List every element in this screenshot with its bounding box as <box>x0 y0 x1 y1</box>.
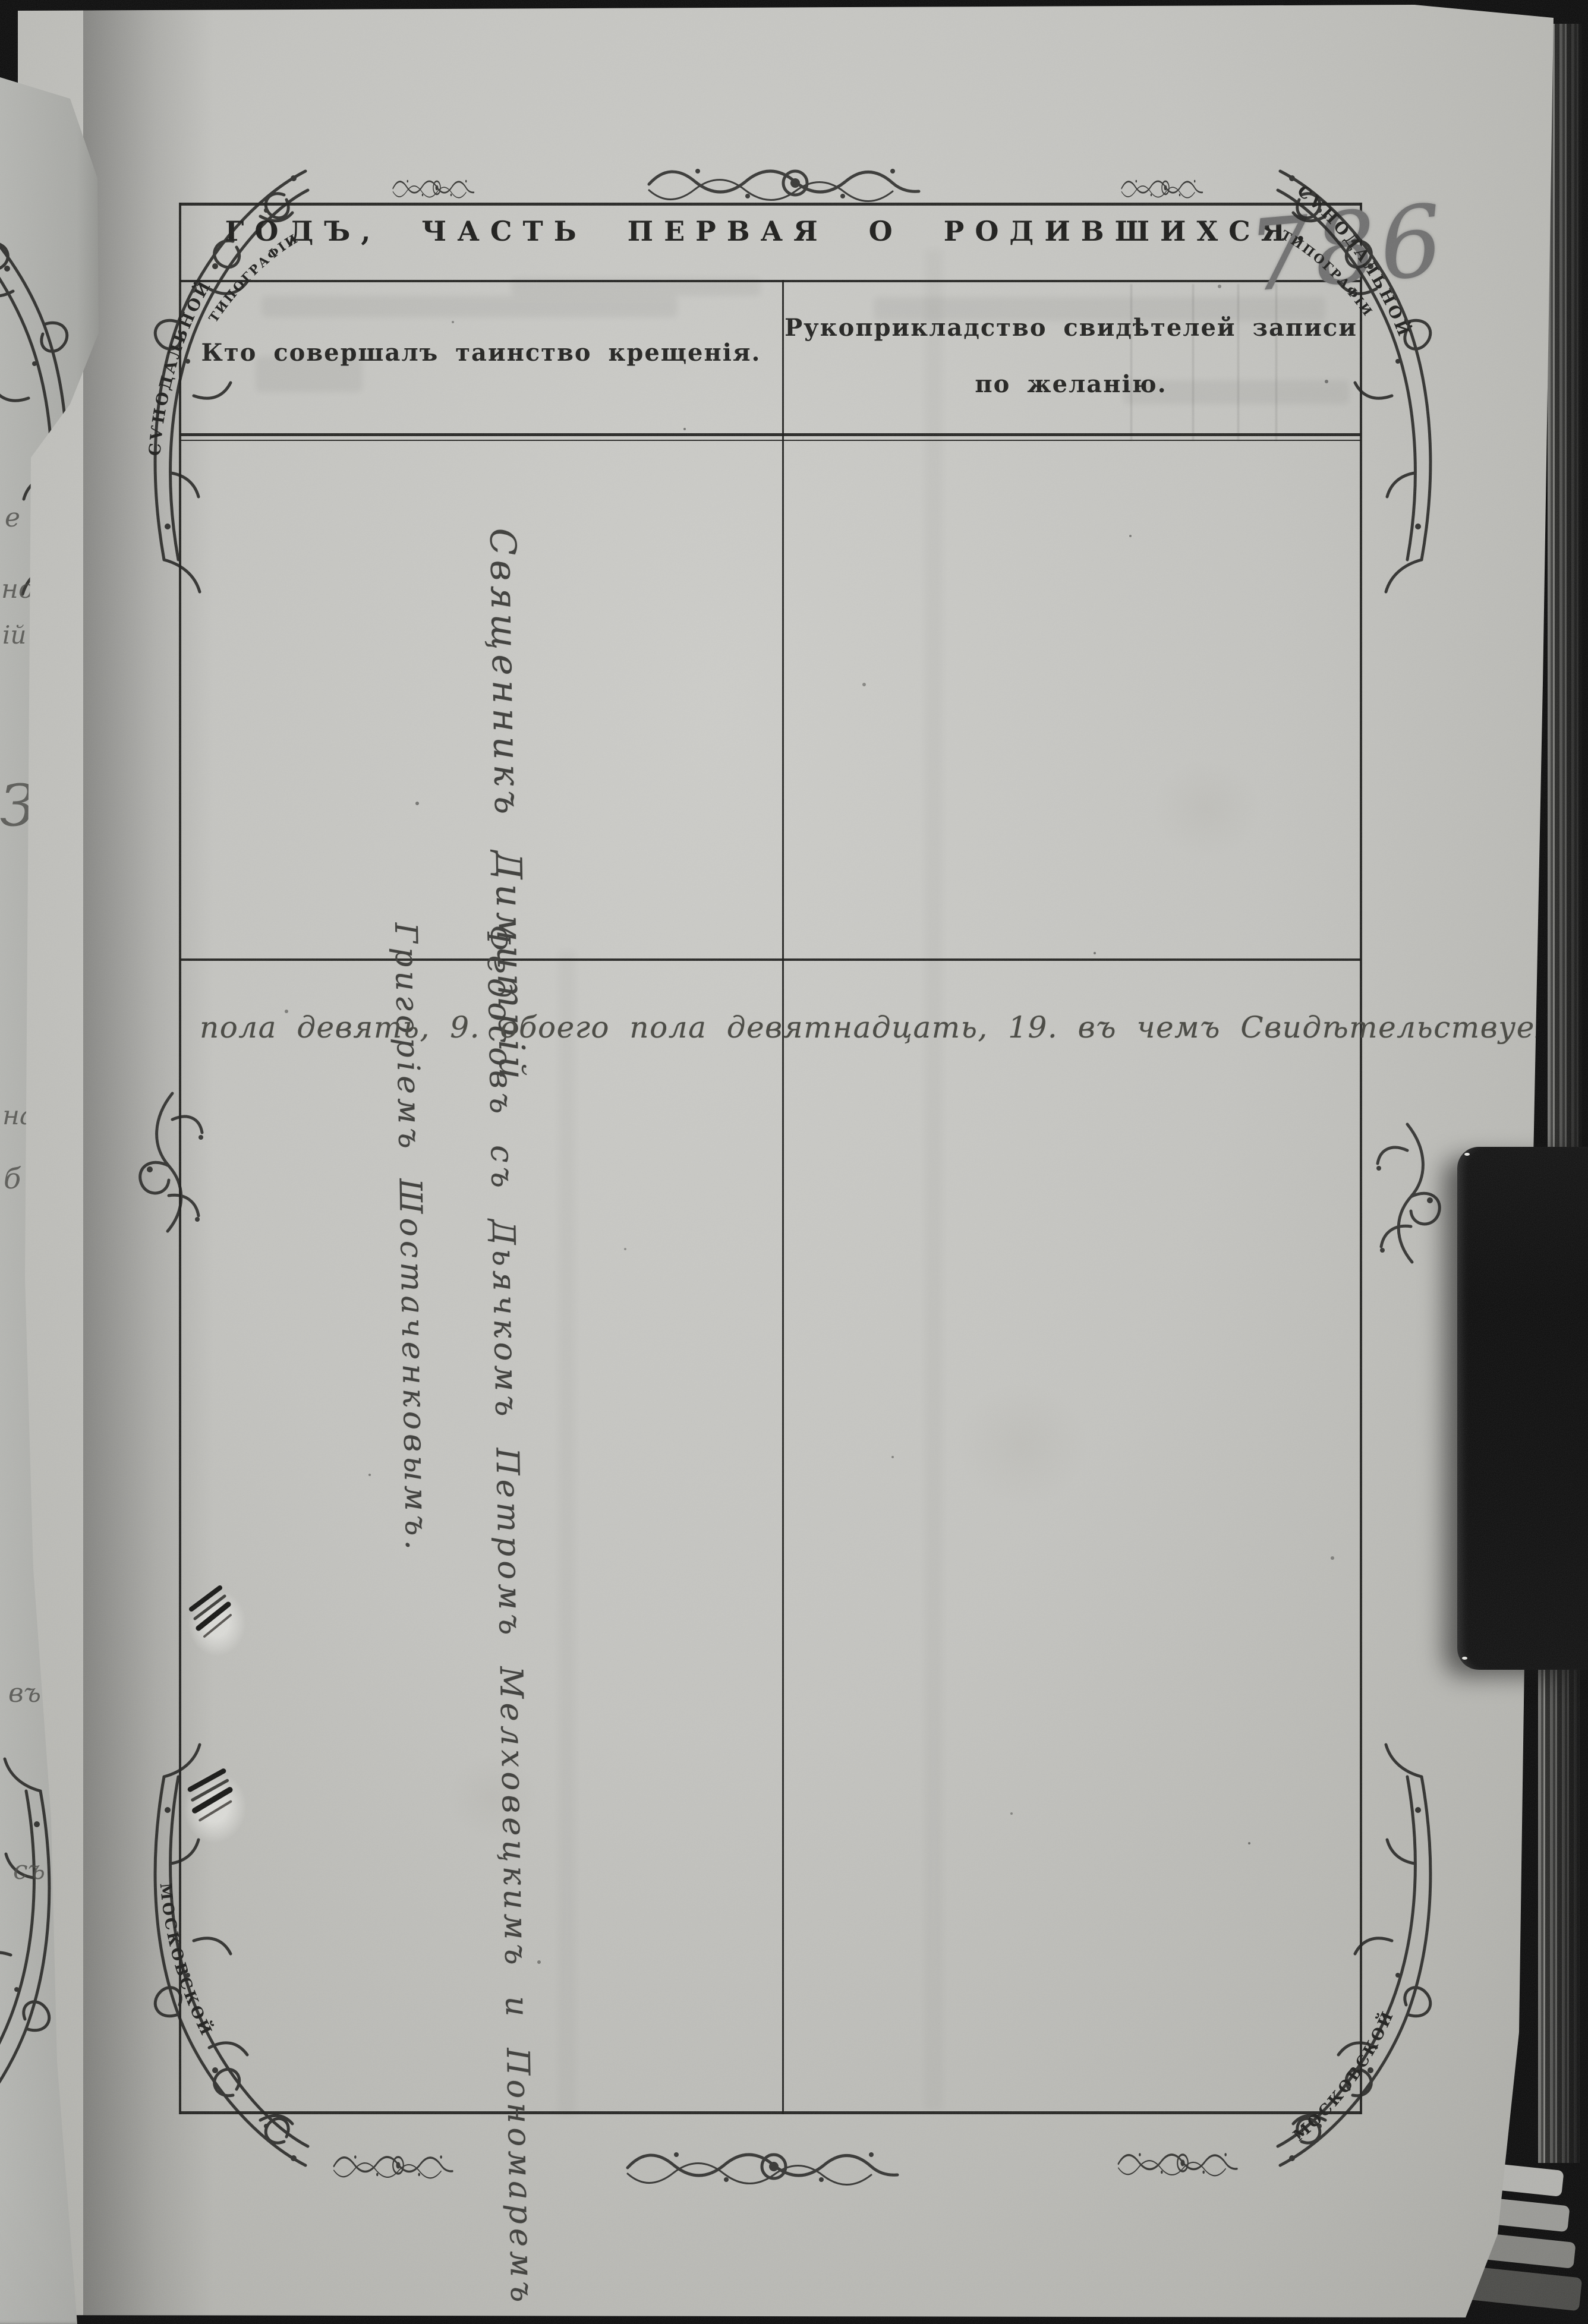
facing-page-handwriting-fragment: б <box>4 1162 21 1196</box>
svg-text:СѴНОДАЛЬНОЙ: СѴНОДАЛЬНОЙ <box>146 276 215 457</box>
top-border-ornament-small <box>1121 175 1210 201</box>
paper-tear <box>168 1755 263 1861</box>
page-title: ГОДЪ, ЧАСТЬ ПЕРВАЯ О РОДИВШИХСЯ. <box>180 215 1361 247</box>
register-page-paper: ГОДЪ, ЧАСТЬ ПЕРВАЯ О РОДИВШИХСЯ. Кто сов… <box>0 0 1588 2324</box>
dust-specks <box>0 0 2 2</box>
svg-text:МОСКОВСКОЙ: МОСКОВСКОЙ <box>1290 2007 1398 2145</box>
foxing-spot <box>1129 737 1284 879</box>
bleedthrough-smudge <box>261 296 678 317</box>
bleedthrough-column-line <box>1237 284 1239 441</box>
bleedthrough-column-line <box>1192 284 1194 441</box>
corner-ornament-bottom-right: МОСКОВСКОЙ <box>1275 1768 1442 2196</box>
table-bottom-rule <box>180 2111 1361 2114</box>
scanned-register-page: ГОДЪ, ЧАСТЬ ПЕРВАЯ О РОДИВШИХСЯ. Кто сов… <box>0 0 1588 2324</box>
facing-page-handwriting-fragment: съ <box>13 1855 45 1885</box>
facing-page-handwriting-fragment: но <box>1 574 34 604</box>
facing-page-handwriting-fragment: ій <box>2 620 26 649</box>
printer-banner-text: МОСКОВСКОЙ <box>1290 2007 1398 2145</box>
book-cover-board <box>1457 1147 1588 1670</box>
yearly-totals-line: пола девять, 9. обоего пола девятнадцать… <box>200 1010 1588 1045</box>
header-bottom-rule <box>180 433 1361 436</box>
row-divider-rule <box>180 958 1361 961</box>
side-ornament-right <box>1365 1122 1454 1265</box>
header-bottom-rule-thin <box>180 440 1361 441</box>
column-divider <box>782 280 784 2114</box>
bottom-border-ornament-center <box>625 2143 922 2190</box>
scan-band <box>559 951 575 2115</box>
facing-page-corner-ornament-bottom <box>0 1783 61 2211</box>
facing-page-handwriting-fragment: е <box>5 503 20 533</box>
top-border-ornament-center <box>647 159 944 207</box>
corner-ornament-top-right: СѴНОДАЛЬНОЙ ТИПОГРАФІИ <box>1275 140 1442 568</box>
cover-glint <box>1462 1657 1467 1660</box>
scan-band <box>925 250 943 2109</box>
foxing-spot <box>428 1735 559 1860</box>
bottom-border-ornament-small <box>1117 2146 1248 2180</box>
book-page-edges-top-shade <box>1548 24 1582 1150</box>
corner-ornament-top-left: СѴНОДАЛЬНОЙ ТИПОГРАФІИ <box>144 140 310 568</box>
bleedthrough-smudge <box>511 278 761 296</box>
bleedthrough-column-line <box>1130 284 1132 441</box>
top-border-ornament-small <box>392 175 481 201</box>
title-bottom-rule <box>180 280 1361 282</box>
paper-tear <box>178 1578 256 1667</box>
foxing-spot <box>927 1355 1117 1533</box>
book-page-edges-bottom-shade <box>1538 1670 1580 2163</box>
cover-glint <box>1464 1153 1470 1156</box>
side-ornament-left <box>126 1091 215 1234</box>
bottom-border-ornament-small <box>333 2149 464 2182</box>
printer-banner-text: СѴНОДАЛЬНОЙ <box>146 276 215 457</box>
facing-page-handwriting-fragment: въ <box>8 1678 41 1708</box>
clergy-signature-line2: Федосовъ съ Дьячкомъ Петромъ Мелховецким… <box>480 925 540 2307</box>
